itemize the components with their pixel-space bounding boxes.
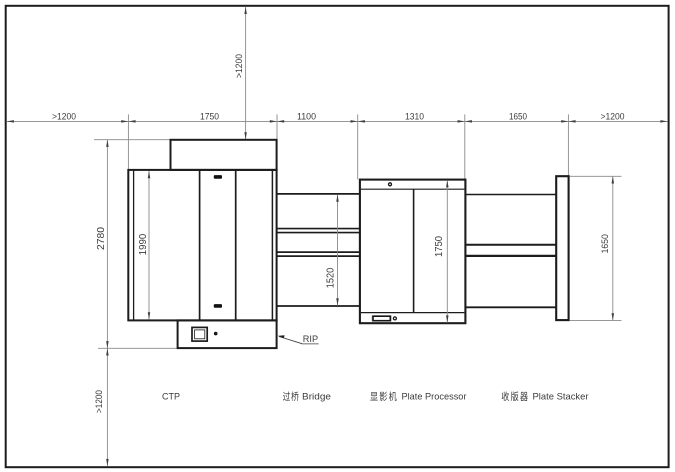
svg-text:>1200: >1200 xyxy=(52,111,76,121)
svg-text:>1200: >1200 xyxy=(601,111,625,121)
svg-text:1990: 1990 xyxy=(138,233,149,255)
svg-text:1520: 1520 xyxy=(326,267,337,288)
svg-text:RIP: RIP xyxy=(303,334,318,344)
svg-text:1750: 1750 xyxy=(200,111,219,121)
svg-text:1650: 1650 xyxy=(509,111,527,121)
svg-text:>1200: >1200 xyxy=(93,390,104,413)
svg-text:1650: 1650 xyxy=(600,234,611,254)
svg-text:2780: 2780 xyxy=(96,227,107,250)
svg-text:Plate Processor: Plate Processor xyxy=(402,391,467,402)
svg-text:>1200: >1200 xyxy=(233,54,244,78)
svg-text:1100: 1100 xyxy=(297,111,316,121)
svg-text:CTP: CTP xyxy=(162,391,180,402)
svg-text:Bridge: Bridge xyxy=(302,391,331,402)
svg-text:Plate Stacker: Plate Stacker xyxy=(533,391,589,402)
svg-text:1310: 1310 xyxy=(405,111,424,121)
svg-text:1750: 1750 xyxy=(434,235,445,257)
